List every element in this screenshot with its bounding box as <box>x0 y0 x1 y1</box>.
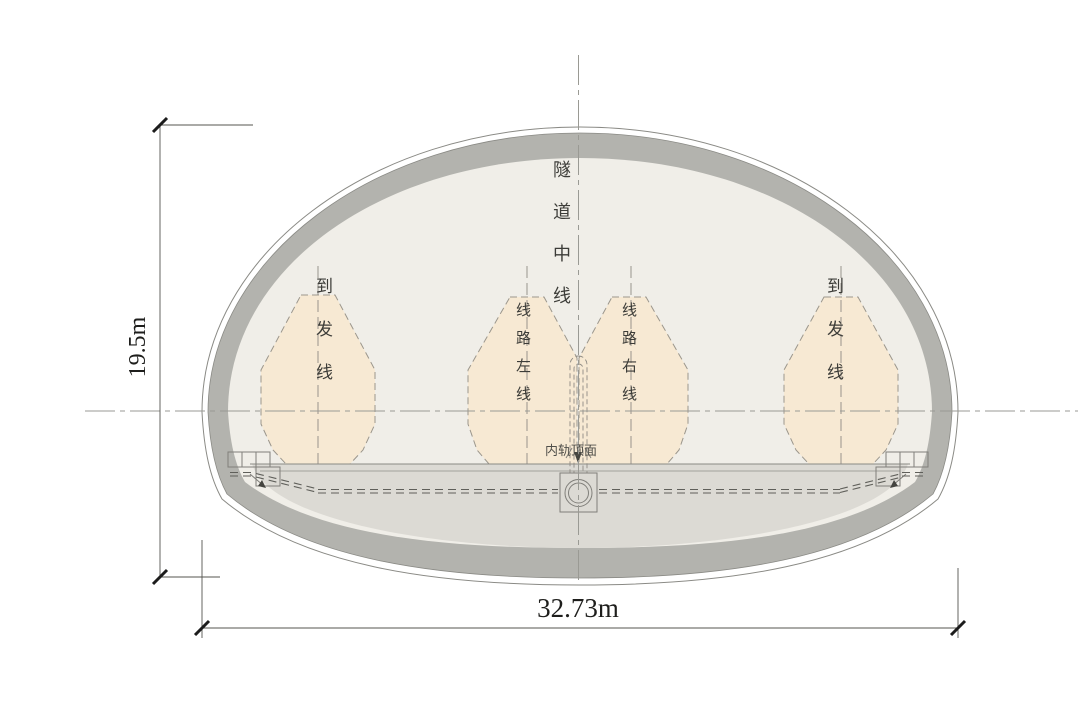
main-line-right-label: 线路右线 <box>621 302 636 414</box>
siding-left-label: 到发线 <box>314 277 331 406</box>
main-line-left-label: 线路左线 <box>515 302 530 414</box>
width-dimension-label: 32.73m <box>498 595 658 622</box>
tunnel-centerline-label: 隧道中线 <box>552 160 570 328</box>
height-dimension-label: 19.5m <box>126 307 150 387</box>
siding-right-label: 到发线 <box>825 277 842 406</box>
diagram-canvas: 隧道中线 到发线 线路左线 线路右线 到发线 内轨顶面 19.5m 32.73m <box>0 0 1085 711</box>
rail-top-surface-label: 内轨顶面 <box>545 444 597 457</box>
